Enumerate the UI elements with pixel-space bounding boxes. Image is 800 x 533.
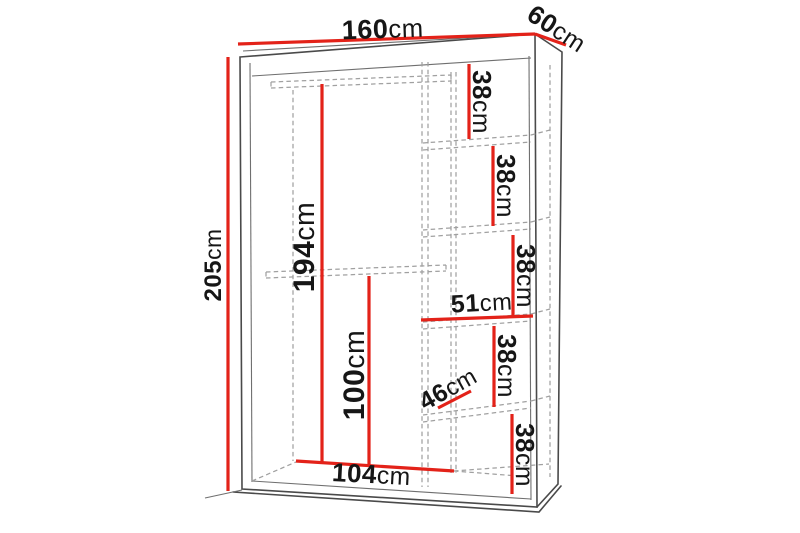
shelf-depth-label: 46cm	[414, 362, 481, 416]
interior-width-unit: cm	[376, 462, 411, 491]
wardrobe-dimension-diagram: 160cm 60cm 205cm 194cm 100cm 104cm 51cm …	[0, 0, 800, 533]
left-wall-inner-edge	[250, 63, 252, 482]
lower-rail-height-label: 100cm	[338, 330, 371, 421]
shelf-gap-3-value: 38	[511, 244, 541, 274]
shelf-gap-2-label: 38cm	[491, 154, 521, 218]
shelf-gap-2-unit: cm	[491, 184, 518, 218]
partition-back-edge	[451, 72, 456, 473]
partition-front-edge	[422, 62, 428, 487]
shelf-width-label: 51cm	[450, 287, 513, 318]
shelf-gap-4-label: 38cm	[492, 334, 522, 398]
shelf-gap-1-unit: cm	[467, 100, 494, 134]
height-unit: cm	[200, 229, 226, 260]
floor-left-diagonal	[252, 462, 296, 481]
shelf-gap-5-unit: cm	[510, 453, 537, 487]
upper-rail-height-value: 194	[288, 241, 321, 293]
upper-rail-height-label: 194cm	[288, 202, 321, 293]
height-label: 205cm	[200, 229, 227, 302]
interior-width-label: 104cm	[331, 457, 411, 491]
diagram-canvas: 160cm 60cm 205cm 194cm 100cm 104cm 51cm …	[0, 0, 800, 533]
width-label: 160cm	[341, 13, 424, 46]
upper-hanging-rail	[271, 75, 451, 88]
shelf-gap-1-value: 38	[467, 70, 497, 100]
height-value: 205	[200, 260, 227, 302]
upper-rail-height-unit: cm	[289, 202, 321, 241]
shelf-gap-3-unit: cm	[511, 274, 538, 308]
shelf-width-value: 51	[450, 289, 480, 318]
lower-rail-height-unit: cm	[339, 330, 371, 369]
base-left-edge	[205, 490, 242, 498]
shelf-gap-4-unit: cm	[492, 364, 519, 398]
width-value: 160	[341, 14, 389, 46]
depth-label: 60cm	[522, 0, 592, 58]
shelf-gap-4-value: 38	[492, 334, 522, 364]
width-unit: cm	[388, 15, 424, 44]
interior-width-value: 104	[331, 457, 377, 489]
dimension-labels: 160cm 60cm 205cm 194cm 100cm 104cm 51cm …	[200, 0, 592, 491]
shelf-gap-5-label: 38cm	[510, 423, 540, 487]
lower-rail-height-value: 100	[338, 369, 371, 421]
shelf-2	[423, 217, 550, 237]
shelf-gap-5-value: 38	[510, 423, 540, 453]
shelf-gap-3-label: 38cm	[511, 244, 541, 308]
shelf-gap-1-label: 38cm	[467, 70, 497, 134]
shelf-width-unit: cm	[479, 288, 513, 317]
shelf-gap-2-value: 38	[491, 154, 521, 184]
